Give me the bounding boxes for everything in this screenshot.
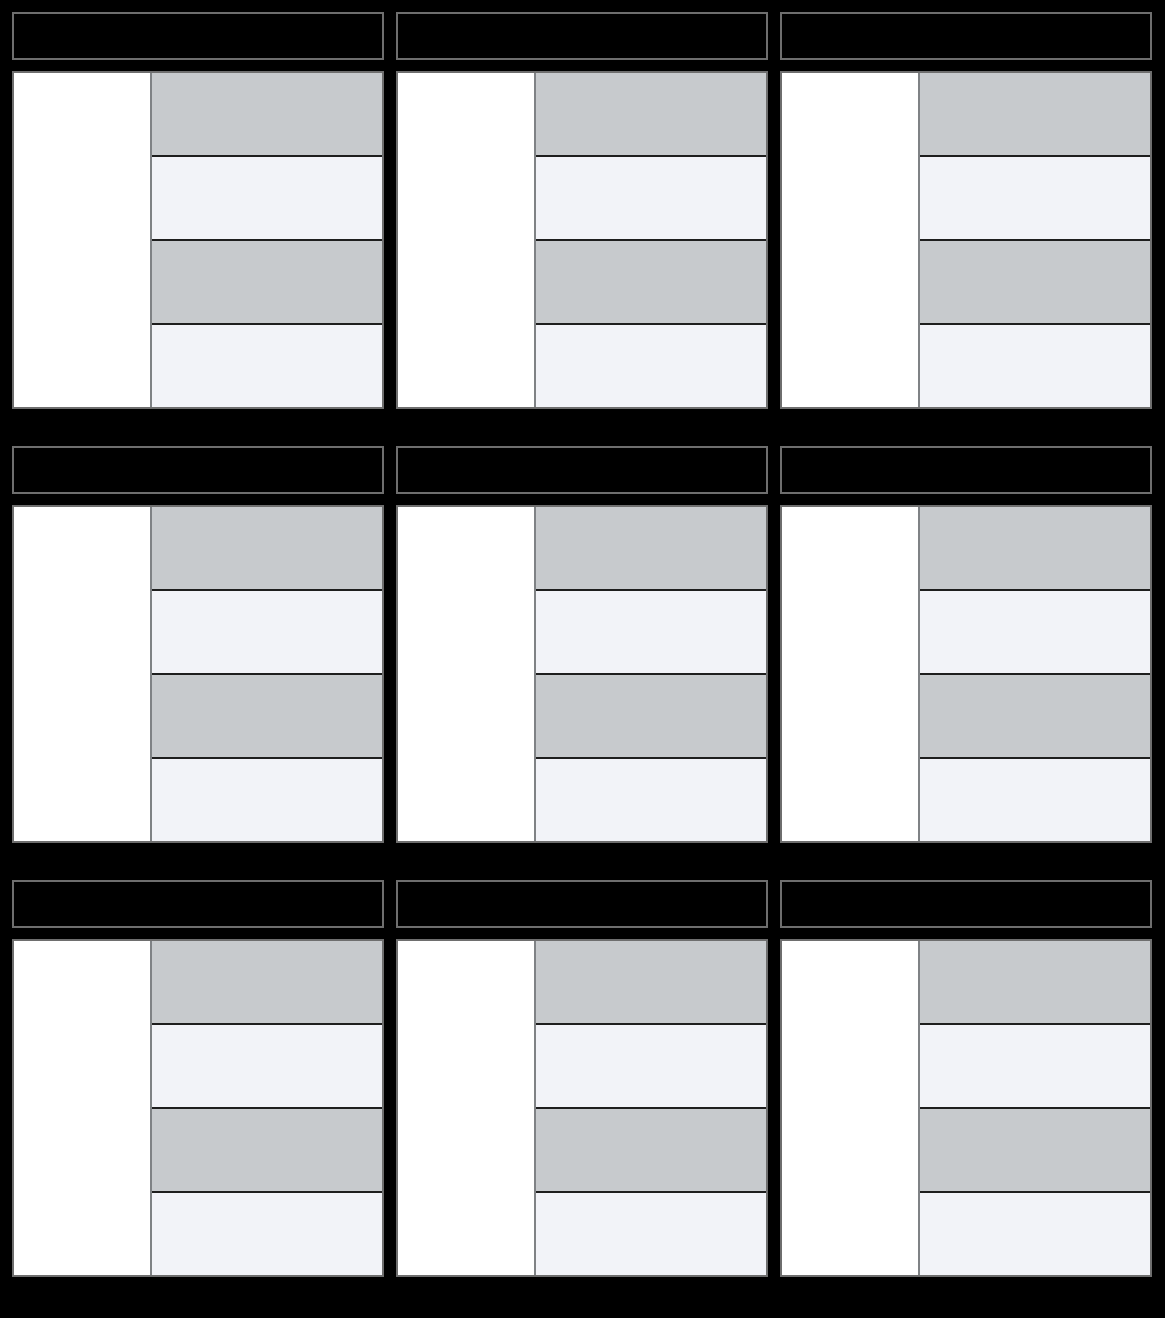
table-row <box>920 941 1150 1023</box>
card-header <box>780 446 1152 494</box>
card <box>780 880 1152 1277</box>
table-row <box>920 757 1150 841</box>
table-row <box>152 673 382 757</box>
table-row <box>536 941 766 1023</box>
table-left-cell <box>398 507 536 841</box>
table-row <box>536 507 766 589</box>
table-row <box>920 155 1150 239</box>
table-row <box>536 73 766 155</box>
table-rows <box>536 941 766 1275</box>
table-row <box>152 507 382 589</box>
table-row <box>152 155 382 239</box>
table-row <box>920 73 1150 155</box>
table-rows <box>152 941 382 1275</box>
table-row <box>920 589 1150 673</box>
table-row <box>536 323 766 407</box>
table-row <box>536 1023 766 1107</box>
card <box>780 446 1152 843</box>
card-header <box>12 880 384 928</box>
card-table <box>396 505 768 843</box>
table-row <box>920 1023 1150 1107</box>
card <box>396 446 768 843</box>
card <box>12 446 384 843</box>
table-row <box>920 1107 1150 1191</box>
table-left-cell <box>782 941 920 1275</box>
card-table <box>780 71 1152 409</box>
card <box>396 880 768 1277</box>
table-rows <box>152 507 382 841</box>
table-left-cell <box>14 73 152 407</box>
table-rows <box>152 73 382 407</box>
card-table <box>12 505 384 843</box>
card-table <box>12 939 384 1277</box>
table-row <box>152 323 382 407</box>
card-table <box>12 71 384 409</box>
table-row <box>920 1191 1150 1275</box>
table-left-cell <box>14 941 152 1275</box>
card <box>396 12 768 409</box>
table-rows <box>920 941 1150 1275</box>
table-row <box>152 589 382 673</box>
card-header <box>780 880 1152 928</box>
page: { "page": { "background": "#000000" }, "… <box>0 0 1165 1318</box>
table-row <box>536 155 766 239</box>
card-table <box>780 505 1152 843</box>
table-left-cell <box>782 507 920 841</box>
table-row <box>536 1191 766 1275</box>
table-left-cell <box>398 941 536 1275</box>
table-row <box>536 239 766 323</box>
card-table <box>780 939 1152 1277</box>
table-row <box>536 757 766 841</box>
table-row <box>920 507 1150 589</box>
table-left-cell <box>398 73 536 407</box>
card-header <box>780 12 1152 60</box>
card-table <box>396 71 768 409</box>
card <box>780 12 1152 409</box>
card-header <box>396 446 768 494</box>
card-header <box>12 12 384 60</box>
table-rows <box>536 507 766 841</box>
table-row <box>152 73 382 155</box>
card-grid <box>0 0 1165 1277</box>
table-row <box>536 1107 766 1191</box>
card-header <box>396 880 768 928</box>
table-row <box>152 941 382 1023</box>
table-row <box>152 1191 382 1275</box>
table-rows <box>536 73 766 407</box>
card <box>12 880 384 1277</box>
table-row <box>536 673 766 757</box>
table-row <box>920 673 1150 757</box>
card <box>12 12 384 409</box>
table-left-cell <box>782 73 920 407</box>
table-row <box>152 1023 382 1107</box>
card-table <box>396 939 768 1277</box>
table-row <box>152 757 382 841</box>
table-row <box>920 239 1150 323</box>
table-row <box>536 589 766 673</box>
table-rows <box>920 507 1150 841</box>
table-row <box>152 239 382 323</box>
table-left-cell <box>14 507 152 841</box>
card-header <box>396 12 768 60</box>
table-rows <box>920 73 1150 407</box>
table-row <box>152 1107 382 1191</box>
card-header <box>12 446 384 494</box>
table-row <box>920 323 1150 407</box>
